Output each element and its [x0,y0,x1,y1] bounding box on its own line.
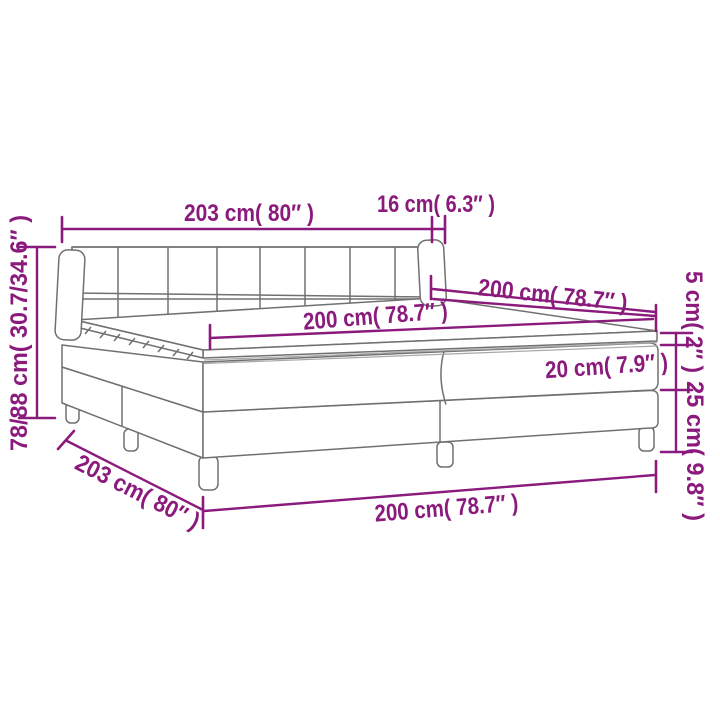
headboard-frame [72,247,428,299]
diagram-stage: 203 cm( 80″ ) 16 cm( 6.3″ ) 78/88 cm( 30… [0,0,720,720]
dim-headboard-width: 203 cm( 80″ ) 16 cm( 6.3″ ) [62,191,495,243]
dimension-diagram: 203 cm( 80″ ) 16 cm( 6.3″ ) 78/88 cm( 30… [0,0,720,720]
bed-leg [639,427,654,451]
label-topper-thickness: 5 cm( 2″ ) [680,271,707,373]
headboard-left-wing [55,249,86,340]
label-headboard-depth: 16 cm( 6.3″ ) [377,191,495,218]
label-headboard-width: 203 cm( 80″ ) [184,200,314,227]
label-bed-width-left: 203 cm( 80″ ) [71,449,204,535]
dim-base-length-front: 200 cm( 78.7″ ) [203,461,656,528]
label-base-height: 25 cm( 9.8″ ) [681,381,708,521]
bed-leg [437,442,453,467]
bed-leg [199,456,218,490]
label-overall-height: 78/88 cm( 30.7/34.6″ ) [6,215,33,451]
dim-overall-height: 78/88 cm( 30.7/34.6″ ) [6,215,55,451]
